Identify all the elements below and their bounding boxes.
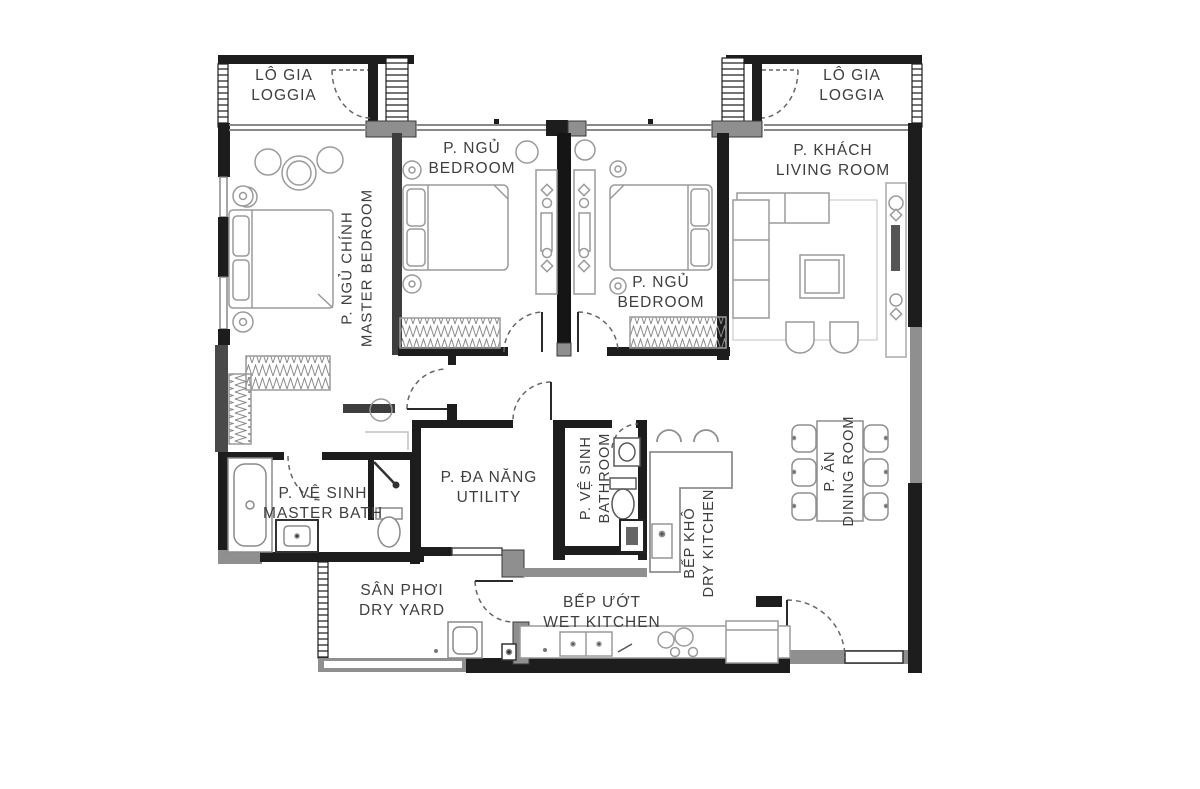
label-dry-kitchen: BẾP KHÔDRY KITCHEN	[681, 489, 719, 598]
loggia-left-door-arc	[332, 70, 370, 118]
pillow	[407, 229, 425, 266]
label-utility: P. ĐA NĂNGUTILITY	[441, 468, 538, 508]
wardrobe	[400, 318, 500, 348]
window	[220, 177, 227, 217]
tv	[891, 225, 900, 271]
armchair	[317, 147, 343, 173]
accent-chair	[786, 322, 814, 353]
fridge	[726, 621, 778, 663]
label-dry-yard: SÂN PHƠIDRY YARD	[359, 581, 445, 621]
wardrobe	[246, 356, 330, 390]
pillow	[233, 260, 249, 300]
entry-door-arc	[787, 600, 845, 658]
living-room-furniture	[733, 183, 906, 357]
loggia-left-railing	[218, 64, 228, 127]
label-bedroom2: P. NGỦBEDROOM	[617, 273, 704, 313]
pillow	[691, 229, 709, 266]
label-bedroom1: P. NGỦBEDROOM	[428, 139, 515, 179]
entry-door-panel	[845, 651, 903, 663]
label-master-bedroom: P. NGỦ CHÍNHMASTER BEDROOM	[338, 189, 377, 347]
label-bathroom: P. VỆ SINHBATHROOM	[577, 433, 615, 524]
label-master-bath: P. VỆ SINHMASTER BATH	[263, 484, 383, 524]
bedroom2-door-arc	[578, 312, 618, 352]
dry-yard-door-arc	[475, 581, 513, 622]
toilet	[612, 489, 634, 519]
bar-stool	[657, 430, 681, 442]
bedroom1-door-arc	[504, 312, 542, 352]
floor-plan: LÔ GIALOGGIA LÔ GIALOGGIA P. NGỦBEDROOM …	[0, 0, 1200, 789]
stool	[575, 140, 595, 160]
pillow	[407, 189, 425, 226]
armchair	[255, 149, 281, 175]
label-wet-kitchen: BẾP ƯỚTWET KITCHEN	[543, 593, 661, 633]
master-bedroom-door-arc	[407, 369, 447, 409]
window	[910, 327, 922, 483]
floor-plan-drawing	[0, 0, 1200, 789]
hall-counter	[365, 432, 408, 450]
window	[220, 277, 227, 329]
sofa-chaise	[733, 200, 769, 318]
wardrobe	[630, 317, 726, 348]
pillow	[233, 216, 249, 256]
dry-yard-fixtures	[434, 622, 516, 660]
kitchen-sink	[652, 524, 672, 558]
bar-stool	[694, 430, 718, 442]
loggia-right-railing	[912, 64, 922, 127]
wardrobe	[229, 374, 251, 444]
label-loggia-left: LÔ GIALOGGIA	[251, 66, 316, 106]
coffee-table	[800, 255, 844, 298]
shower-head	[393, 482, 400, 489]
accent-chair	[830, 322, 858, 353]
label-living-room: P. KHÁCHLIVING ROOM	[776, 141, 890, 181]
loggia-right-door-arc	[762, 70, 798, 118]
master-bedroom-furniture	[229, 147, 343, 444]
pillow	[691, 189, 709, 226]
utility-door-arc	[513, 382, 551, 420]
dry-yard-railing	[318, 562, 328, 658]
shower-arm	[374, 462, 394, 483]
label-dining-room: P. ĂNDINING ROOM	[821, 416, 859, 527]
stool	[516, 141, 538, 163]
label-loggia-right: LÔ GIALOGGIA	[819, 66, 884, 106]
